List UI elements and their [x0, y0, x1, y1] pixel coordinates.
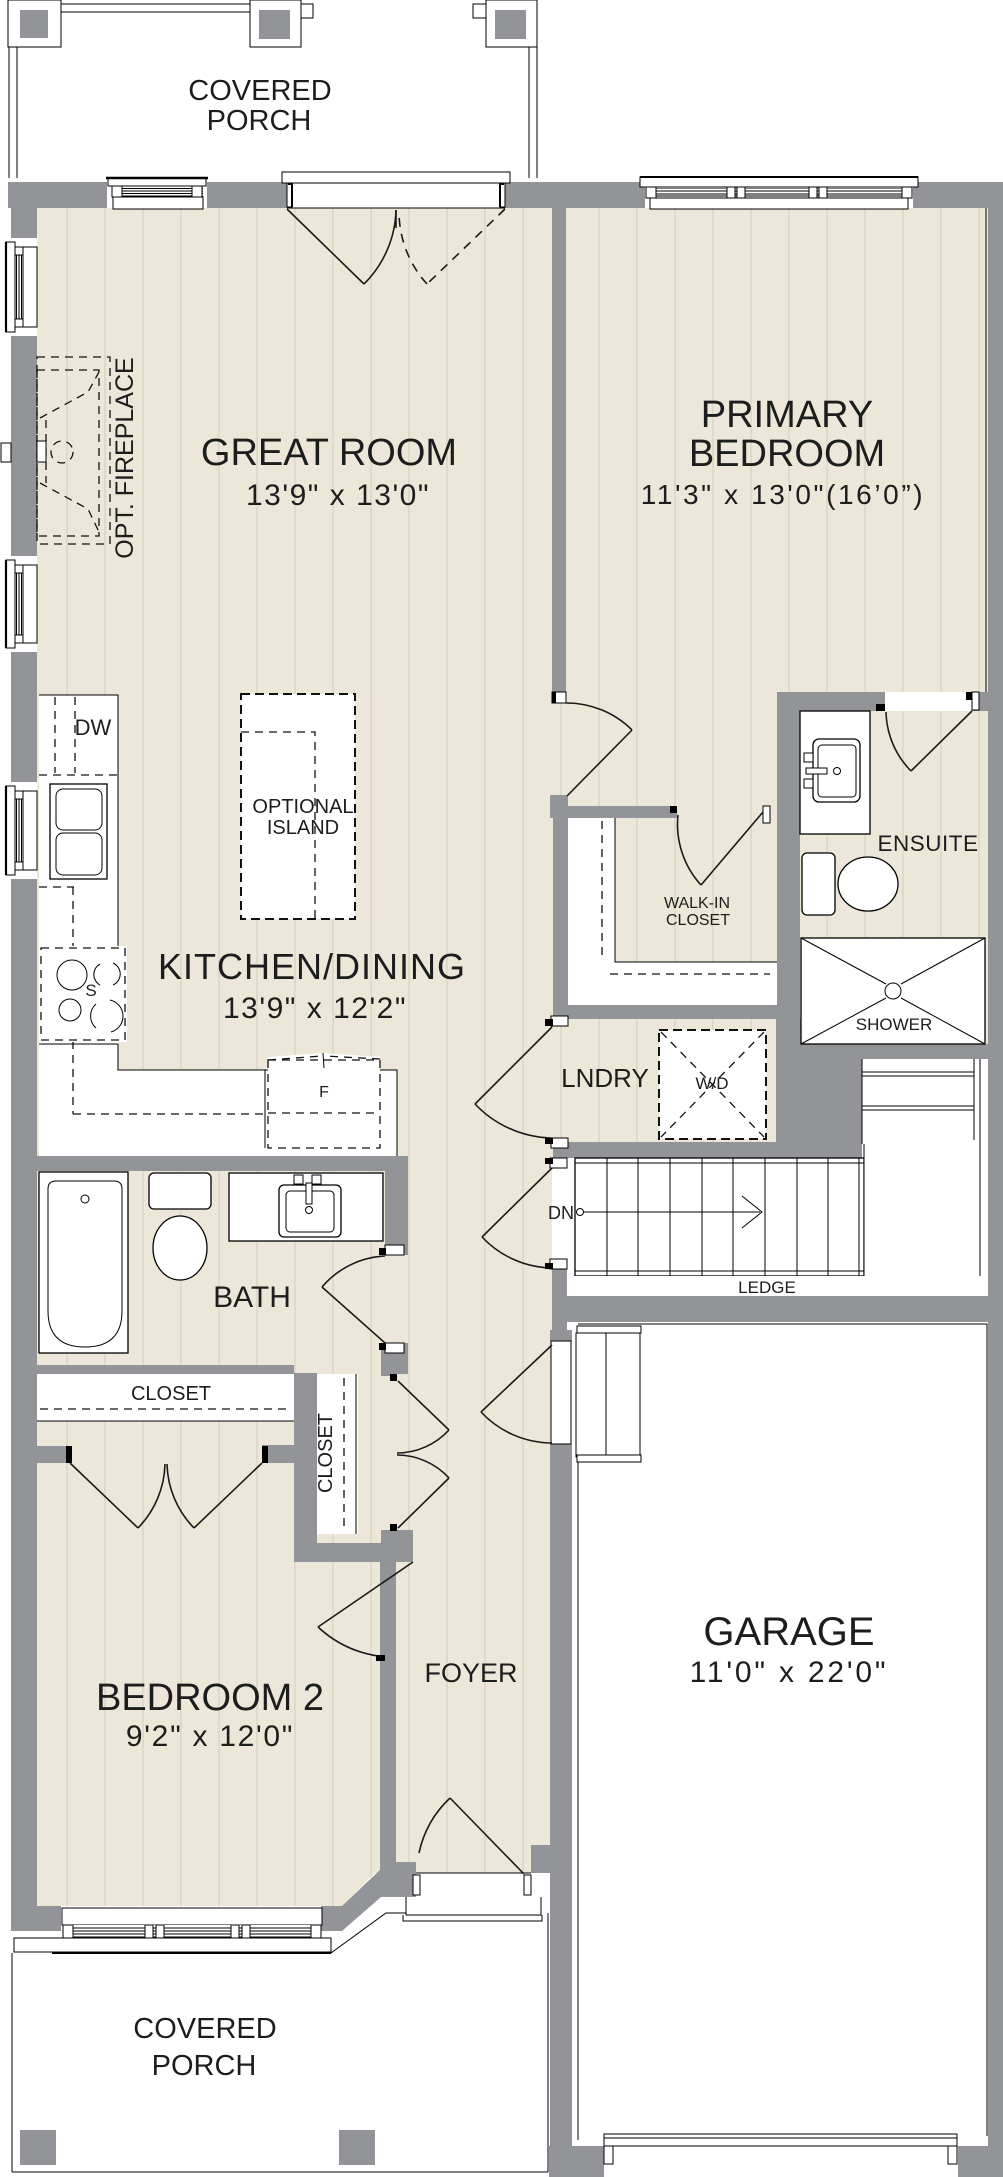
svg-text:CLOSET: CLOSET [315, 1413, 337, 1493]
svg-text:WALK-IN: WALK-IN [664, 895, 730, 912]
svg-text:DW: DW [75, 715, 112, 740]
svg-text:F: F [319, 1084, 329, 1101]
svg-text:OPTIONAL: OPTIONAL [252, 796, 353, 818]
svg-text:13'9" x 12'2": 13'9" x 12'2" [223, 992, 407, 1025]
svg-text:ISLAND: ISLAND [267, 817, 339, 839]
svg-text:KITCHEN/DINING: KITCHEN/DINING [158, 946, 466, 987]
svg-text:COVERED: COVERED [188, 75, 331, 107]
svg-text:11'0" x 22'0": 11'0" x 22'0" [690, 1656, 889, 1689]
svg-text:LEDGE: LEDGE [738, 1278, 796, 1297]
svg-text:OPT. FIREPLACE: OPT. FIREPLACE [111, 357, 139, 558]
svg-text:LNDRY: LNDRY [561, 1063, 649, 1093]
svg-text:BEDROOM: BEDROOM [689, 433, 885, 475]
svg-text:9'2" x 12'0": 9'2" x 12'0" [126, 1720, 294, 1753]
svg-text:SHOWER: SHOWER [856, 1015, 933, 1034]
svg-text:GREAT ROOM: GREAT ROOM [201, 432, 457, 474]
svg-text:CLOSET: CLOSET [666, 912, 730, 929]
svg-text:11'3" x 13'0"(16’0”): 11'3" x 13'0"(16’0”) [641, 479, 925, 510]
svg-text:DN: DN [548, 1203, 574, 1223]
svg-text:FOYER: FOYER [424, 1658, 517, 1688]
svg-text:CLOSET: CLOSET [131, 1383, 211, 1405]
svg-text:BATH: BATH [213, 1281, 291, 1314]
svg-text:S: S [85, 981, 96, 1000]
svg-text:13'9" x 13'0": 13'9" x 13'0" [246, 479, 430, 512]
svg-text:W/D: W/D [695, 1074, 728, 1093]
svg-text:PRIMARY: PRIMARY [701, 394, 873, 436]
svg-text:GARAGE: GARAGE [703, 1610, 874, 1654]
svg-text:ENSUITE: ENSUITE [877, 831, 978, 856]
svg-text:PORCH: PORCH [207, 105, 312, 137]
svg-text:BEDROOM 2: BEDROOM 2 [96, 1677, 324, 1719]
svg-text:COVERED: COVERED [133, 2013, 276, 2045]
svg-text:PORCH: PORCH [152, 2050, 257, 2082]
